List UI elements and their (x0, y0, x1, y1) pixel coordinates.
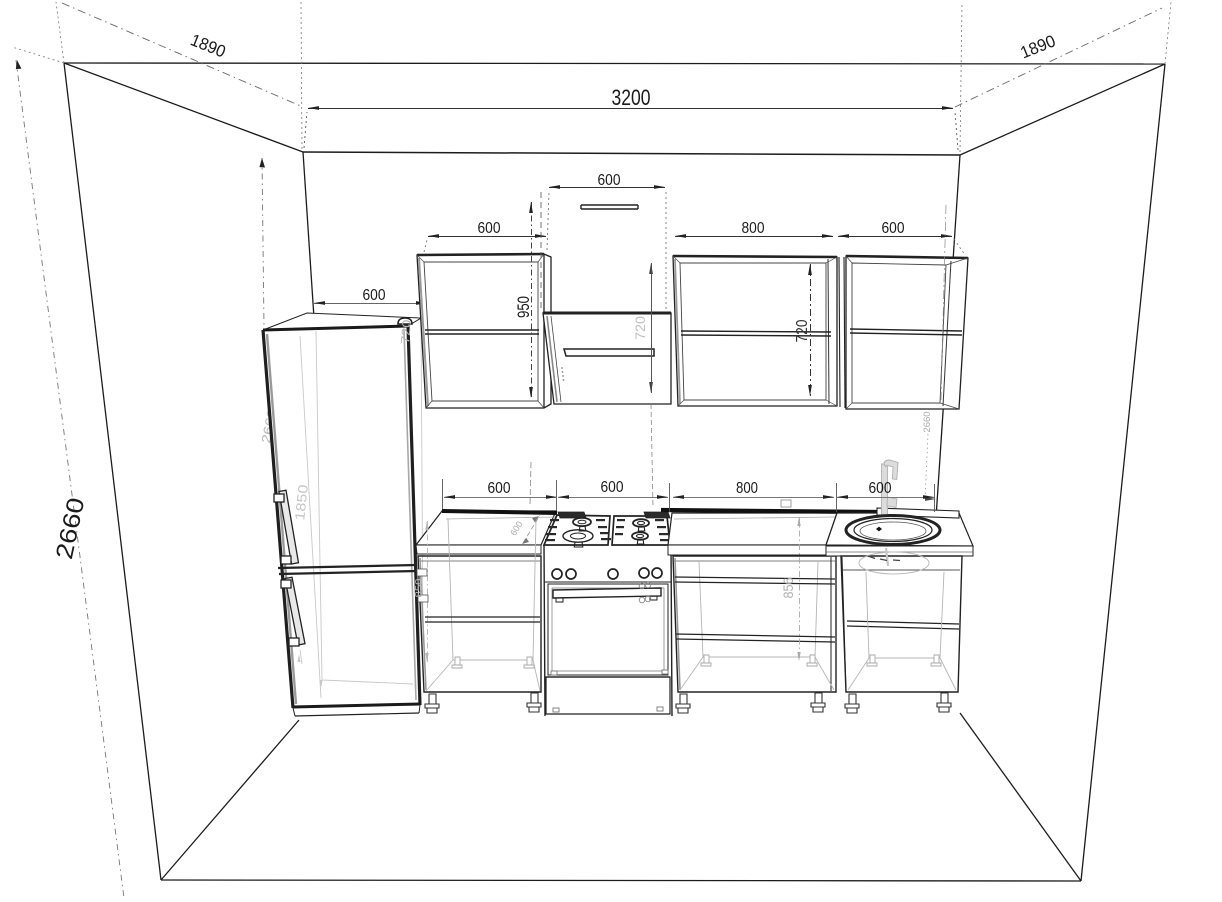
svg-text:800: 800 (742, 220, 765, 237)
svg-text:850: 850 (414, 578, 425, 597)
svg-text:600: 600 (488, 480, 511, 497)
svg-text:2660: 2660 (51, 495, 90, 561)
svg-text:600: 600 (869, 480, 892, 497)
svg-text:3200: 3200 (612, 85, 651, 110)
svg-text:720: 720 (794, 319, 811, 342)
svg-text:1890: 1890 (188, 30, 228, 61)
svg-text:720: 720 (633, 316, 648, 340)
svg-text:950: 950 (515, 296, 533, 318)
svg-text:600: 600 (598, 172, 621, 189)
svg-text:600: 600 (601, 479, 624, 496)
svg-text:600: 600 (363, 287, 386, 304)
svg-text:1890: 1890 (1018, 31, 1058, 62)
svg-text:720: 720 (398, 319, 414, 344)
svg-text:600: 600 (882, 220, 905, 237)
svg-text:600: 600 (478, 220, 501, 237)
svg-text:800: 800 (736, 480, 758, 497)
svg-text:2660: 2660 (922, 412, 932, 433)
svg-text:856: 856 (780, 577, 796, 598)
